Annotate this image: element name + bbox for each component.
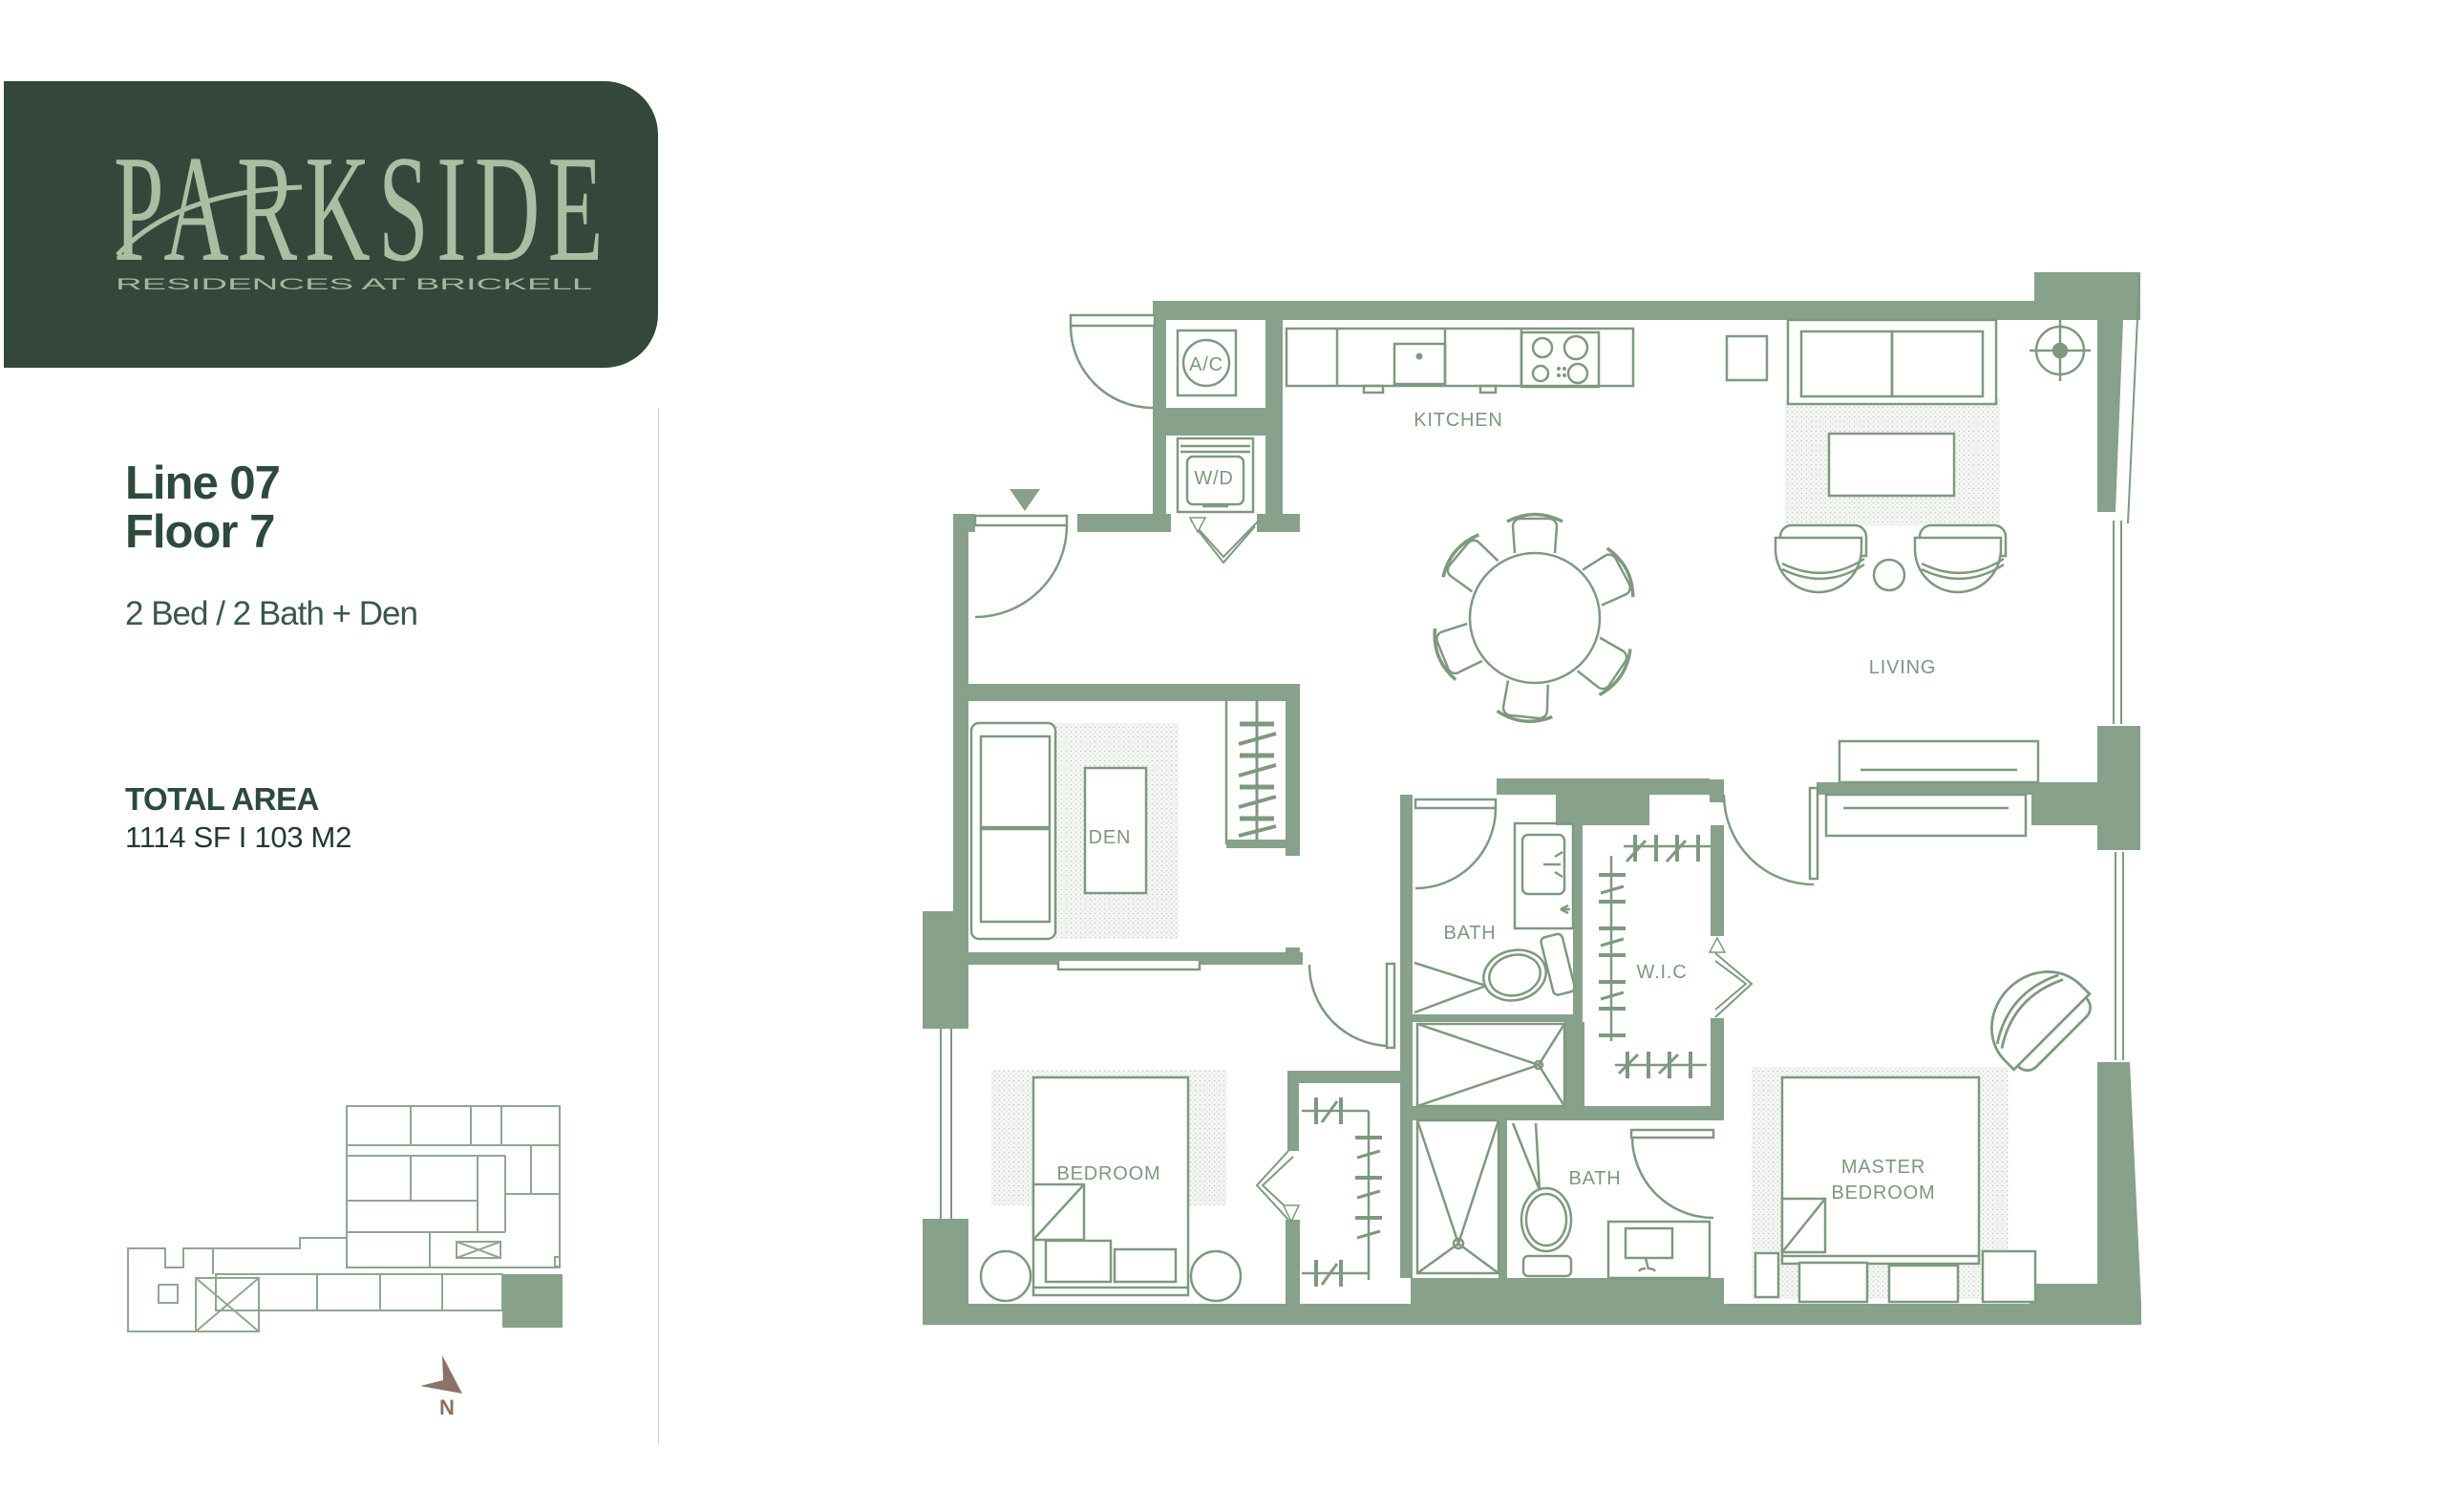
svg-text:RESIDENCES AT BRICKELL: RESIDENCES AT BRICKELL [116, 275, 592, 293]
svg-text:W.I.C: W.I.C [1637, 962, 1688, 983]
svg-text:LIVING: LIVING [1869, 657, 1936, 678]
svg-text:N: N [439, 1395, 455, 1419]
svg-text:BATH: BATH [1568, 1168, 1621, 1189]
svg-text:BEDROOM: BEDROOM [1057, 1163, 1161, 1184]
svg-text:A/C: A/C [1189, 354, 1223, 375]
svg-text:KITCHEN: KITCHEN [1414, 410, 1502, 431]
svg-text:DEN: DEN [1089, 827, 1132, 848]
svg-text:BATH: BATH [1443, 923, 1496, 944]
svg-text:BEDROOM: BEDROOM [1832, 1182, 1936, 1203]
svg-text:W/D: W/D [1194, 468, 1233, 489]
svg-text:MASTER: MASTER [1841, 1157, 1925, 1178]
